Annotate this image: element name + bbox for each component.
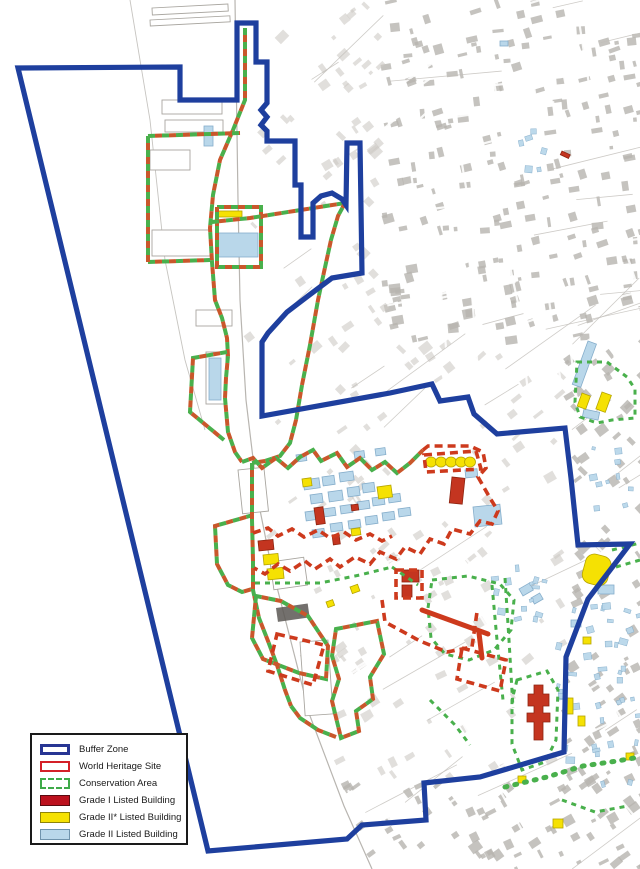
world-heritage-site-swatch	[40, 761, 70, 772]
legend-label: Grade II* Listed Building	[79, 813, 181, 823]
grade1-swatch	[40, 795, 70, 806]
legend-item-grade2star-listed: Grade II* Listed Building	[40, 809, 186, 826]
grade2-swatch	[40, 829, 70, 840]
legend-item-grade2-listed: Grade II Listed Building	[40, 826, 186, 843]
legend-item-world-heritage-site: World Heritage Site	[40, 758, 186, 775]
legend-label: Grade I Listed Building	[79, 796, 175, 806]
legend-label: World Heritage Site	[79, 762, 161, 772]
legend-label: Conservation Area	[79, 779, 157, 789]
legend-item-conservation-area: Conservation Area	[40, 775, 186, 792]
legend-label: Grade II Listed Building	[79, 830, 178, 840]
legend-label: Buffer Zone	[79, 745, 128, 755]
grade2star-swatch	[40, 812, 70, 823]
conservation-area-swatch	[40, 778, 70, 789]
legend-item-buffer-zone: Buffer Zone	[40, 741, 186, 758]
legend-item-grade1-listed: Grade I Listed Building	[40, 792, 186, 809]
buffer-zone-swatch	[40, 744, 70, 755]
heritage-map-page: Buffer Zone World Heritage Site Conserva…	[0, 0, 640, 869]
legend: Buffer Zone World Heritage Site Conserva…	[30, 733, 188, 845]
